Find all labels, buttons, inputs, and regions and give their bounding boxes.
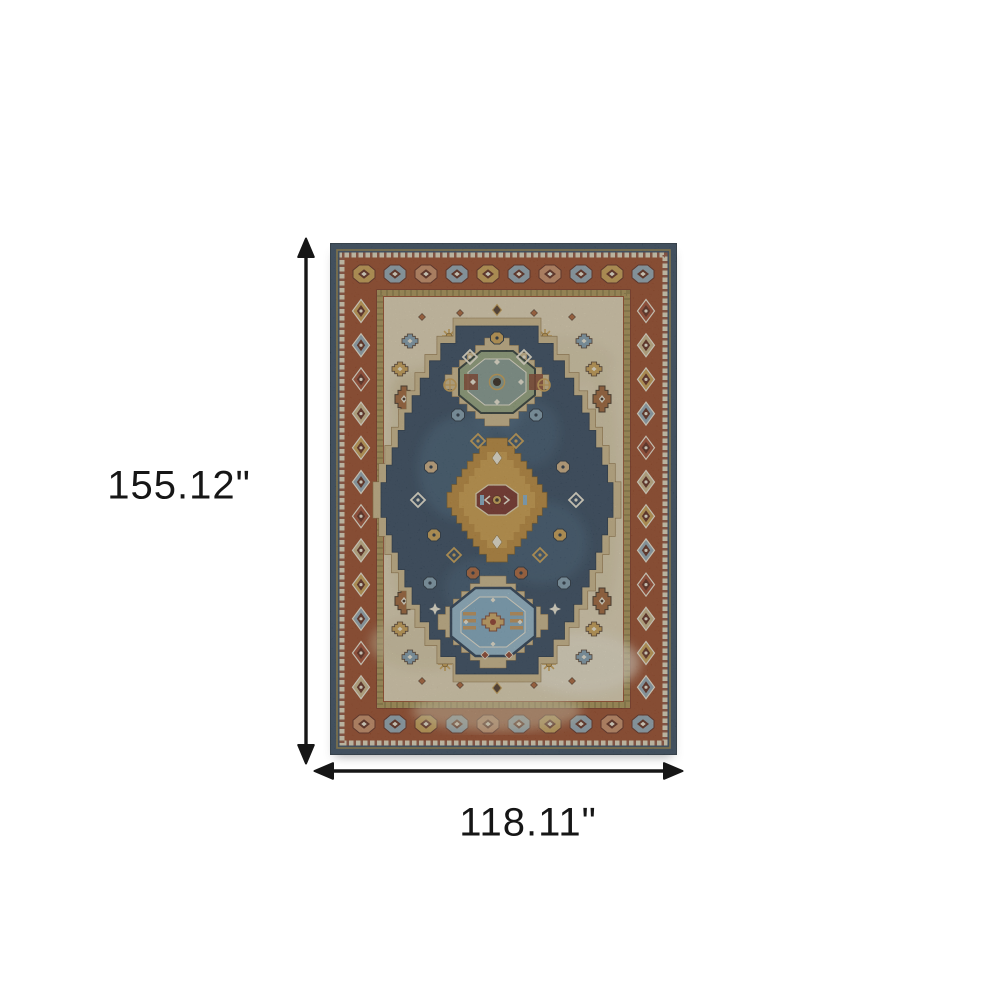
arrow-down-icon [298,745,314,764]
height-dimension-arrow [298,239,314,764]
arrow-left-icon [315,763,334,779]
width-dimension-arrow [315,763,683,779]
height-dimension-label: 155.12" [107,464,251,509]
width-dimension-label: 118.11" [459,801,597,846]
arrow-up-icon [298,239,314,258]
product-dimension-diagram: 155.12" 118.11" [0,0,1000,1000]
rug-image [330,243,677,755]
arrow-right-icon [664,763,683,779]
rug-texture-overlay [330,243,677,755]
